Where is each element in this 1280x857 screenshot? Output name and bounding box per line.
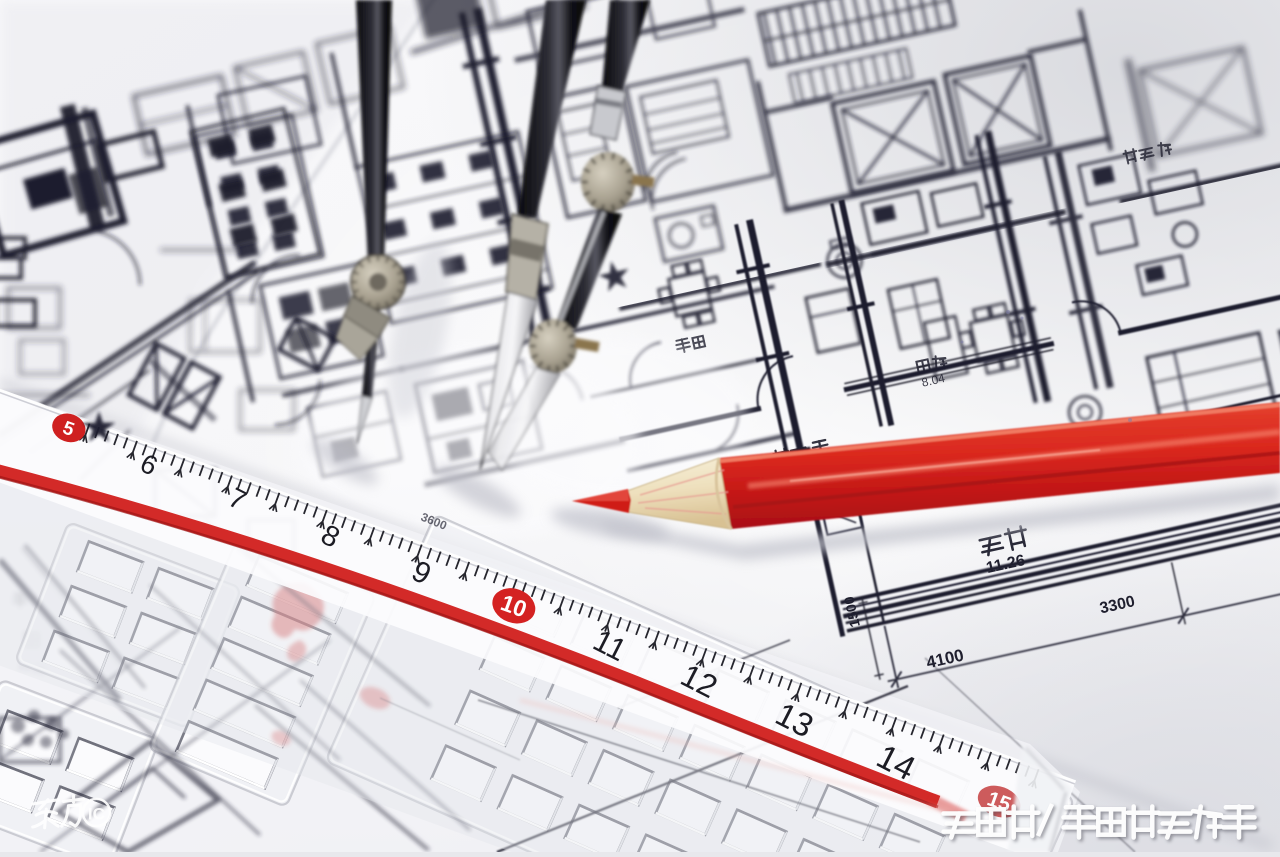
svg-text:IC: IC	[88, 804, 105, 823]
